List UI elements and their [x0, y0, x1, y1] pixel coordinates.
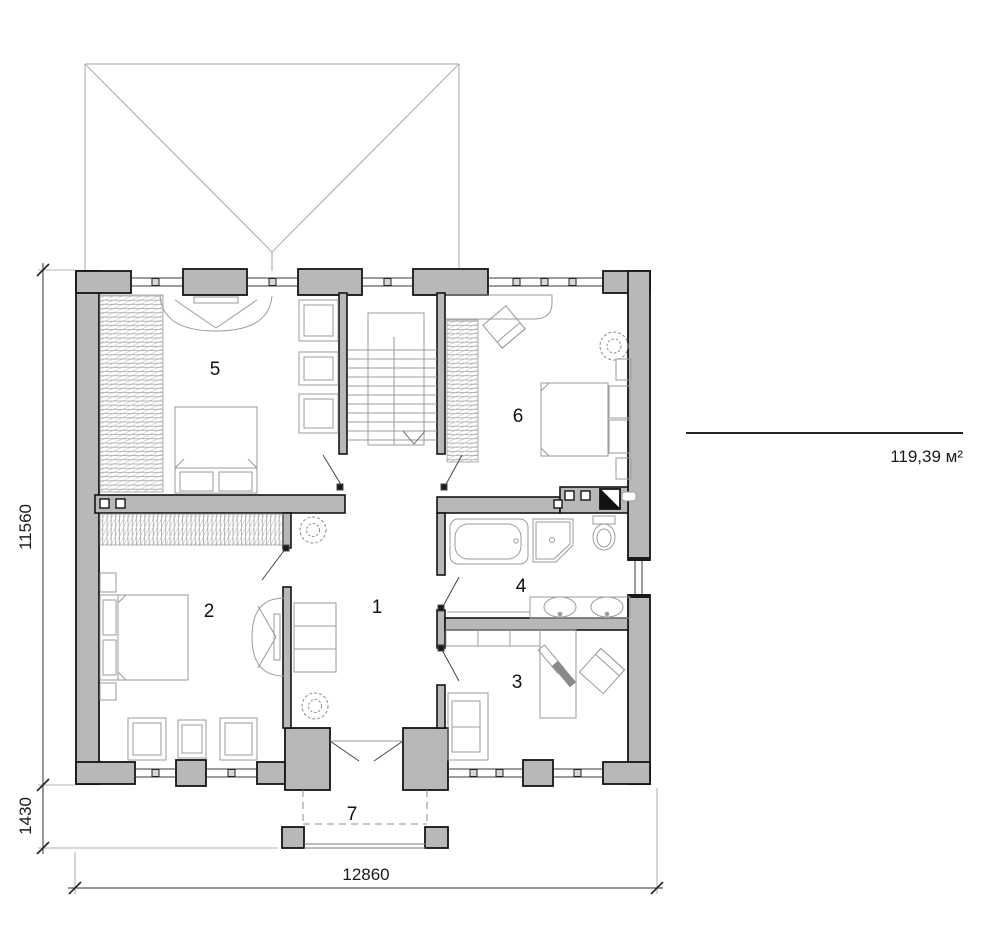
wall-top-corner-left	[76, 271, 131, 293]
area-annotation: 119,39 м²	[686, 433, 963, 466]
door-room2	[262, 545, 289, 580]
sofa	[448, 693, 488, 760]
plant	[300, 517, 326, 543]
chair	[483, 306, 525, 348]
wall-bath-room3	[445, 618, 628, 630]
bed	[541, 359, 631, 479]
stair-wall-left	[339, 293, 347, 454]
bookshelf	[446, 630, 540, 646]
roof-outline	[85, 64, 459, 271]
chair	[579, 648, 624, 693]
shelf-units	[299, 300, 338, 433]
wall-bottom-pier-a	[176, 760, 206, 786]
room-3: 3	[446, 630, 625, 760]
wall-bottom-corner-right	[603, 762, 650, 784]
room-2: 2	[100, 514, 284, 760]
floor-plan-drawing: 5 6	[0, 0, 1000, 925]
room-7-label: 7	[347, 804, 358, 825]
socket-icon	[116, 499, 125, 508]
room-2-label: 2	[204, 601, 215, 622]
wall-room2-hall-upper	[283, 513, 291, 548]
staircase	[348, 313, 437, 445]
wall-top-pier-c	[413, 269, 488, 295]
door-porch-double	[330, 741, 403, 761]
wardrobe-hatch	[447, 320, 478, 462]
wall-top-pier-a	[183, 269, 247, 295]
floor-plan-page: 5 6	[0, 0, 1000, 925]
hallway: 1	[294, 517, 382, 719]
porch-pillar-right	[425, 827, 448, 848]
fixture	[622, 492, 636, 501]
socket-icon	[554, 500, 562, 508]
plant	[302, 693, 328, 719]
dresser-mirror	[252, 598, 284, 676]
porch-pillar-left	[282, 827, 304, 848]
plant	[600, 332, 628, 360]
porch-pier-right	[403, 728, 448, 790]
bathtub	[450, 519, 528, 564]
desk	[538, 630, 576, 718]
porch-pier-left	[285, 728, 330, 790]
wall-top-pier-b	[298, 269, 362, 295]
dimension-width-label: 12860	[342, 865, 389, 884]
socket-icon	[581, 491, 590, 500]
shower	[533, 519, 573, 562]
socket-icon	[100, 499, 109, 508]
door-room5	[323, 455, 343, 490]
room-5-label: 5	[210, 359, 221, 380]
wall-bath-hall-upper	[437, 513, 445, 575]
wall-right-upper	[628, 271, 650, 560]
sink-counter	[447, 597, 630, 618]
nightstand	[100, 683, 116, 700]
bed	[175, 407, 257, 493]
wall-left	[76, 271, 99, 784]
porch: 7	[303, 790, 427, 848]
stair-direction-arrow	[403, 431, 425, 444]
wall-room2-hall-lower	[283, 587, 291, 728]
wall-bottom-pier-b	[523, 760, 553, 786]
dimension-porch-label: 1430	[16, 797, 35, 835]
dimension-bottom: 12860	[68, 788, 663, 894]
room-6: 6	[446, 295, 631, 479]
vanity-dresser	[160, 296, 272, 331]
curtain-wardrobe-hatch	[100, 514, 283, 545]
desk-counter	[446, 295, 552, 319]
room-6-label: 6	[513, 406, 524, 427]
area-value-label: 119,39 м²	[890, 447, 963, 466]
bed	[100, 573, 188, 700]
pouf-seats	[128, 718, 257, 760]
wall-room5-room2	[95, 495, 345, 513]
room-5: 5	[100, 295, 338, 493]
wall-bottom-left-end	[257, 762, 285, 784]
wall-bath-hall-lower	[437, 610, 445, 648]
toilet	[593, 516, 615, 550]
wall-bottom-corner-left	[76, 762, 135, 784]
console-cabinet	[294, 603, 336, 672]
wall-hall-room3	[437, 685, 445, 728]
dimension-height-label: 11560	[16, 504, 35, 550]
nightstand	[100, 573, 116, 592]
stair-wall-right	[437, 293, 445, 454]
socket-icon	[565, 491, 574, 500]
wardrobe-hatch	[100, 295, 163, 492]
wall-right-lower	[628, 595, 650, 784]
room-4-label: 4	[516, 576, 527, 597]
room-1-label: 1	[372, 597, 383, 618]
interior-walls	[95, 293, 628, 728]
door-bathroom	[438, 577, 459, 611]
room-3-label: 3	[512, 672, 523, 693]
porch-outline-dashed	[303, 790, 427, 824]
bathroom: 4	[447, 516, 630, 618]
vent-shaft-icon	[600, 489, 620, 509]
door-room3	[438, 645, 459, 681]
wall-room6-bath-left	[437, 497, 560, 513]
